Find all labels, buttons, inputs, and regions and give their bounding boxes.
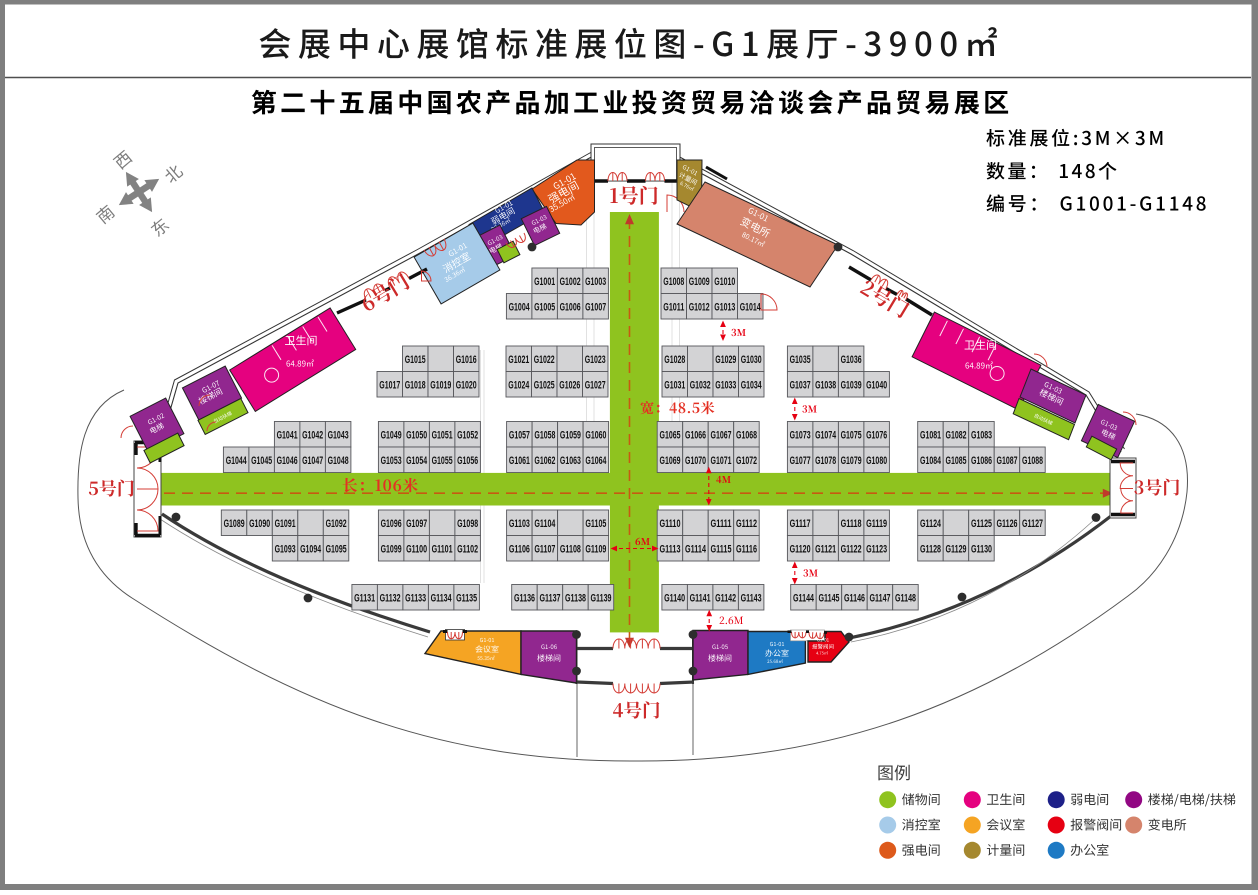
svg-text:G1097: G1097	[406, 518, 427, 530]
svg-text:G1065: G1065	[660, 430, 681, 442]
svg-text:G1064: G1064	[585, 455, 606, 467]
svg-text:G1103: G1103	[509, 518, 530, 530]
svg-text:G1127: G1127	[1022, 518, 1043, 530]
svg-text:G1007: G1007	[585, 302, 606, 314]
svg-text:G1067: G1067	[711, 430, 732, 442]
svg-text:G1045: G1045	[251, 455, 272, 467]
svg-text:G1035: G1035	[790, 354, 811, 366]
svg-text:G1053: G1053	[381, 455, 402, 467]
svg-text:G1096: G1096	[381, 518, 402, 530]
svg-text:G1037: G1037	[790, 380, 811, 392]
svg-text:G1115: G1115	[711, 544, 732, 556]
svg-text:G1125: G1125	[971, 518, 992, 530]
svg-text:G1048: G1048	[328, 455, 349, 467]
svg-text:G1028: G1028	[664, 354, 685, 366]
svg-text:G1013: G1013	[714, 302, 735, 314]
svg-text:G1084: G1084	[920, 455, 941, 467]
svg-text:G1139: G1139	[591, 593, 612, 605]
svg-text:G1039: G1039	[841, 380, 862, 392]
svg-text:G1117: G1117	[790, 518, 811, 530]
svg-text:G1089: G1089	[224, 518, 245, 530]
svg-text:G1036: G1036	[841, 354, 862, 366]
svg-text:G1095: G1095	[326, 544, 347, 556]
svg-text:G1108: G1108	[560, 544, 581, 556]
svg-text:G1112: G1112	[736, 518, 757, 530]
svg-text:G1144: G1144	[793, 593, 814, 605]
svg-text:G1016: G1016	[456, 354, 477, 366]
svg-text:G1147: G1147	[870, 593, 891, 605]
svg-text:G1049: G1049	[381, 430, 402, 442]
svg-text:G1100: G1100	[406, 544, 427, 556]
svg-text:G1086: G1086	[971, 455, 992, 467]
svg-text:G1029: G1029	[715, 354, 736, 366]
svg-text:G1111: G1111	[711, 518, 732, 530]
svg-text:G1015: G1015	[405, 354, 426, 366]
svg-text:G1001: G1001	[534, 276, 555, 288]
svg-text:G1087: G1087	[997, 455, 1018, 467]
svg-text:G1026: G1026	[559, 380, 580, 392]
svg-text:G1014: G1014	[740, 302, 761, 314]
svg-text:G1079: G1079	[841, 455, 862, 467]
svg-text:G1131: G1131	[354, 593, 375, 605]
svg-text:G1129: G1129	[946, 544, 967, 556]
svg-text:G1134: G1134	[431, 593, 452, 605]
svg-text:G1008: G1008	[663, 276, 684, 288]
svg-text:G1040: G1040	[866, 380, 887, 392]
svg-text:G1005: G1005	[534, 302, 555, 314]
svg-text:G1022: G1022	[534, 354, 555, 366]
svg-text:G1043: G1043	[328, 430, 349, 442]
svg-text:G1124: G1124	[920, 518, 941, 530]
svg-text:G1106: G1106	[509, 544, 530, 556]
svg-text:G1058: G1058	[534, 430, 555, 442]
svg-text:G1009: G1009	[689, 276, 710, 288]
svg-text:G1021: G1021	[508, 354, 529, 366]
svg-text:G1126: G1126	[997, 518, 1018, 530]
svg-text:G1034: G1034	[741, 380, 762, 392]
svg-text:G1104: G1104	[534, 518, 555, 530]
svg-text:G1120: G1120	[790, 544, 811, 556]
svg-text:G1110: G1110	[660, 518, 681, 530]
svg-text:G1060: G1060	[585, 430, 606, 442]
svg-text:G1145: G1145	[819, 593, 840, 605]
svg-text:G1072: G1072	[736, 455, 757, 467]
svg-text:G1038: G1038	[815, 380, 836, 392]
svg-text:G1017: G1017	[379, 380, 400, 392]
svg-text:G1050: G1050	[406, 430, 427, 442]
svg-text:G1085: G1085	[946, 455, 967, 467]
svg-text:G1030: G1030	[741, 354, 762, 366]
svg-text:G1093: G1093	[275, 544, 296, 556]
svg-text:G1019: G1019	[430, 380, 451, 392]
svg-text:G1116: G1116	[736, 544, 757, 556]
svg-text:G1142: G1142	[715, 593, 736, 605]
svg-text:G1092: G1092	[326, 518, 347, 530]
svg-text:G1130: G1130	[971, 544, 992, 556]
svg-text:G1133: G1133	[405, 593, 426, 605]
svg-text:G1056: G1056	[457, 455, 478, 467]
svg-text:G1135: G1135	[456, 593, 477, 605]
svg-text:G1138: G1138	[565, 593, 586, 605]
svg-text:G1076: G1076	[866, 430, 887, 442]
svg-text:G1003: G1003	[585, 276, 606, 288]
svg-text:G1046: G1046	[277, 455, 298, 467]
svg-text:G1137: G1137	[540, 593, 561, 605]
svg-text:G1041: G1041	[277, 430, 298, 442]
svg-text:G1080: G1080	[866, 455, 887, 467]
svg-text:G1062: G1062	[534, 455, 555, 467]
svg-text:G1024: G1024	[508, 380, 529, 392]
svg-text:G1102: G1102	[457, 544, 478, 556]
svg-text:G1132: G1132	[380, 593, 401, 605]
svg-text:G1010: G1010	[714, 276, 735, 288]
svg-text:G1105: G1105	[585, 518, 606, 530]
svg-text:G1094: G1094	[300, 544, 321, 556]
svg-text:G1114: G1114	[685, 544, 706, 556]
svg-text:G1057: G1057	[509, 430, 530, 442]
svg-text:G1099: G1099	[381, 544, 402, 556]
svg-text:G1143: G1143	[741, 593, 762, 605]
svg-text:G1004: G1004	[509, 302, 530, 314]
svg-text:G1118: G1118	[841, 518, 862, 530]
svg-text:G1088: G1088	[1022, 455, 1043, 467]
svg-text:G1113: G1113	[660, 544, 681, 556]
svg-text:G1107: G1107	[534, 544, 555, 556]
svg-text:G1027: G1027	[585, 380, 606, 392]
svg-text:G1140: G1140	[664, 593, 685, 605]
svg-text:G1054: G1054	[406, 455, 427, 467]
svg-text:G1047: G1047	[302, 455, 323, 467]
svg-text:G1070: G1070	[685, 455, 706, 467]
svg-text:G1012: G1012	[689, 302, 710, 314]
svg-text:G1077: G1077	[790, 455, 811, 467]
svg-text:G1078: G1078	[815, 455, 836, 467]
svg-text:G1044: G1044	[226, 455, 247, 467]
svg-text:G1074: G1074	[815, 430, 836, 442]
svg-text:G1055: G1055	[432, 455, 453, 467]
svg-text:G1141: G1141	[690, 593, 711, 605]
svg-text:G1031: G1031	[664, 380, 685, 392]
svg-text:G1098: G1098	[457, 518, 478, 530]
svg-text:G1061: G1061	[509, 455, 530, 467]
svg-text:G1069: G1069	[660, 455, 681, 467]
svg-text:G1071: G1071	[711, 455, 732, 467]
svg-text:G1122: G1122	[841, 544, 862, 556]
svg-text:G1052: G1052	[457, 430, 478, 442]
svg-text:G1136: G1136	[514, 593, 535, 605]
svg-text:G1068: G1068	[736, 430, 757, 442]
svg-text:G1091: G1091	[275, 518, 296, 530]
svg-text:G1011: G1011	[663, 302, 684, 314]
svg-text:G1083: G1083	[971, 430, 992, 442]
svg-text:G1025: G1025	[534, 380, 555, 392]
svg-text:G1109: G1109	[585, 544, 606, 556]
svg-text:G1066: G1066	[685, 430, 706, 442]
svg-text:G1033: G1033	[715, 380, 736, 392]
svg-text:G1121: G1121	[815, 544, 836, 556]
svg-text:G1146: G1146	[844, 593, 865, 605]
svg-text:G1119: G1119	[866, 518, 887, 530]
svg-text:G1020: G1020	[456, 380, 477, 392]
svg-text:G1018: G1018	[405, 380, 426, 392]
svg-text:G1063: G1063	[560, 455, 581, 467]
svg-text:G1023: G1023	[585, 354, 606, 366]
svg-text:G1073: G1073	[790, 430, 811, 442]
svg-text:G1081: G1081	[920, 430, 941, 442]
svg-text:G1148: G1148	[895, 593, 916, 605]
svg-text:G1101: G1101	[432, 544, 453, 556]
svg-text:G1002: G1002	[560, 276, 581, 288]
svg-text:G1032: G1032	[690, 380, 711, 392]
svg-text:G1051: G1051	[432, 430, 453, 442]
svg-text:G1075: G1075	[841, 430, 862, 442]
svg-text:G1128: G1128	[920, 544, 941, 556]
svg-text:G1082: G1082	[946, 430, 967, 442]
svg-text:G1059: G1059	[560, 430, 581, 442]
svg-text:G1123: G1123	[866, 544, 887, 556]
svg-text:G1042: G1042	[302, 430, 323, 442]
svg-text:G1006: G1006	[560, 302, 581, 314]
svg-text:G1090: G1090	[249, 518, 270, 530]
